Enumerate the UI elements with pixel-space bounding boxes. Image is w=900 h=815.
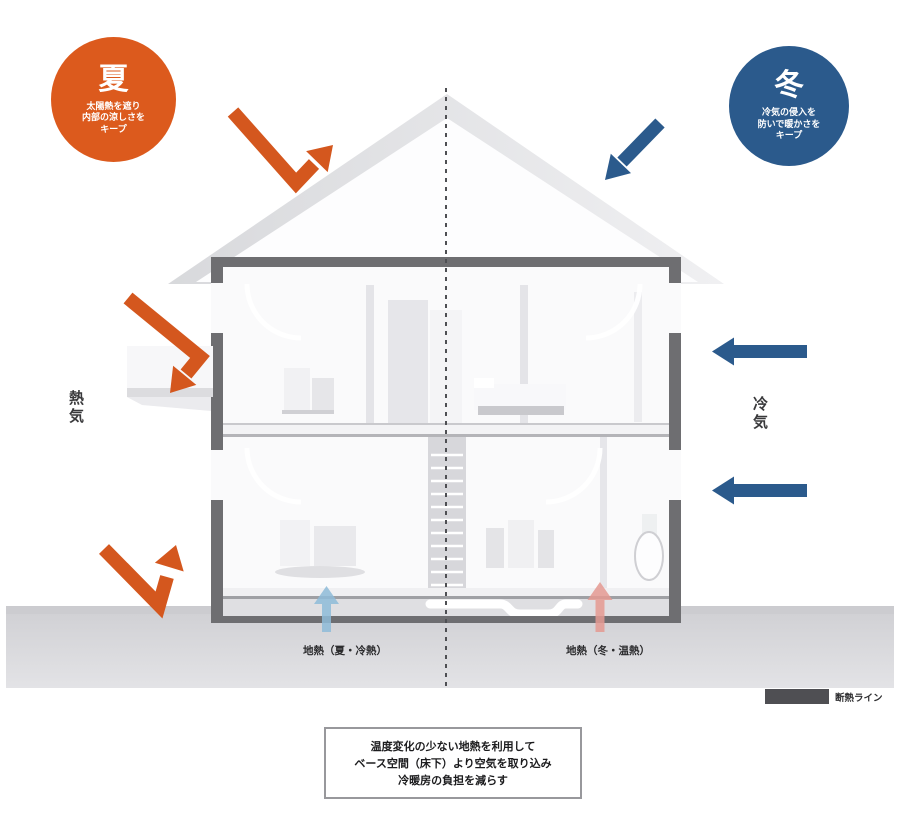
winter-text-line: 冷気の侵入を bbox=[762, 108, 816, 120]
toilet bbox=[635, 532, 663, 580]
insulation-legend: 断熱ライン bbox=[765, 689, 883, 704]
caption-line: 冷暖房の負担を減らす bbox=[398, 772, 508, 789]
caption-line: 温度変化の少ない地熱を利用して bbox=[371, 738, 536, 755]
summer-text-line: 太陽熱を遮り bbox=[86, 102, 140, 114]
winter-roof-arrow bbox=[605, 123, 660, 180]
winter-badge: 冬 冷気の侵入を 防いで暖かさを キープ bbox=[729, 46, 849, 166]
geothermal-summer-label: 地熱（夏・冷熱） bbox=[270, 643, 420, 658]
insulation-legend-label: 断熱ライン bbox=[835, 690, 883, 704]
summer-roof-deflect-arrow bbox=[233, 112, 333, 183]
sofa bbox=[280, 520, 310, 566]
summer-text-line: 内部の涼しさを bbox=[82, 113, 145, 125]
house-thermal-diagram: 夏 太陽熱を遮り 内部の涼しさを キープ 冬 冷気の侵入を 防いで暖かさを キー… bbox=[0, 0, 900, 815]
summer-badge: 夏 太陽熱を遮り 内部の涼しさを キープ bbox=[51, 37, 176, 162]
geothermal-winter-label: 地熱（冬・温熱） bbox=[533, 643, 683, 658]
winter-text-line: 防いで暖かさを bbox=[758, 120, 821, 132]
dining-set bbox=[508, 520, 534, 568]
insulation-swatch bbox=[765, 689, 829, 704]
winter-symbol: 冬 bbox=[774, 69, 804, 103]
summer-ground-deflect-arrow bbox=[104, 545, 184, 605]
winter-lower-wall-arrow bbox=[712, 477, 807, 505]
hot-air-label: 熱気 bbox=[66, 390, 87, 426]
winter-upper-wall-arrow bbox=[712, 338, 807, 366]
caption-line: ベース空間（床下）より空気を取り込み bbox=[354, 755, 551, 772]
summer-text-line: キープ bbox=[100, 125, 126, 137]
cold-air-label: 冷気 bbox=[750, 396, 771, 432]
winter-text-line: キープ bbox=[776, 131, 802, 143]
summer-symbol: 夏 bbox=[99, 63, 129, 97]
caption-box: 温度変化の少ない地熱を利用して ベース空間（床下）より空気を取り込み 冷暖房の負… bbox=[324, 727, 582, 799]
